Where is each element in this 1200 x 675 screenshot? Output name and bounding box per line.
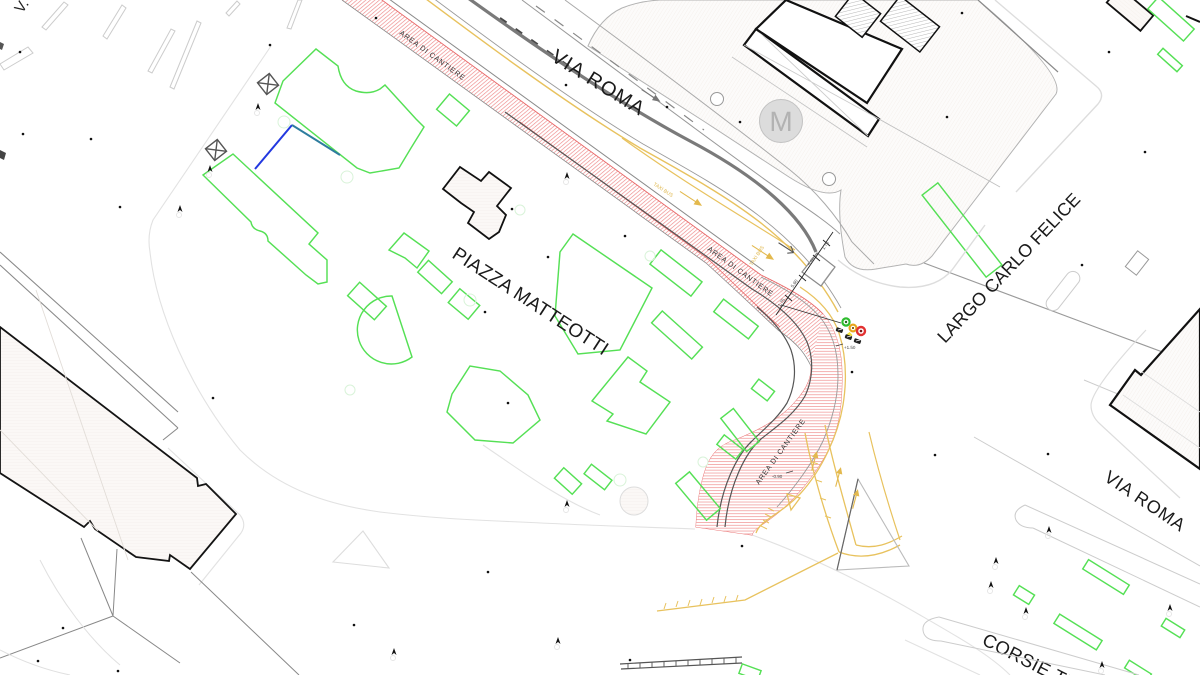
svg-text:M: M xyxy=(769,106,792,137)
svg-text:+1.50: +1.50 xyxy=(844,345,856,350)
svg-text:-0.90: -0.90 xyxy=(772,474,783,479)
